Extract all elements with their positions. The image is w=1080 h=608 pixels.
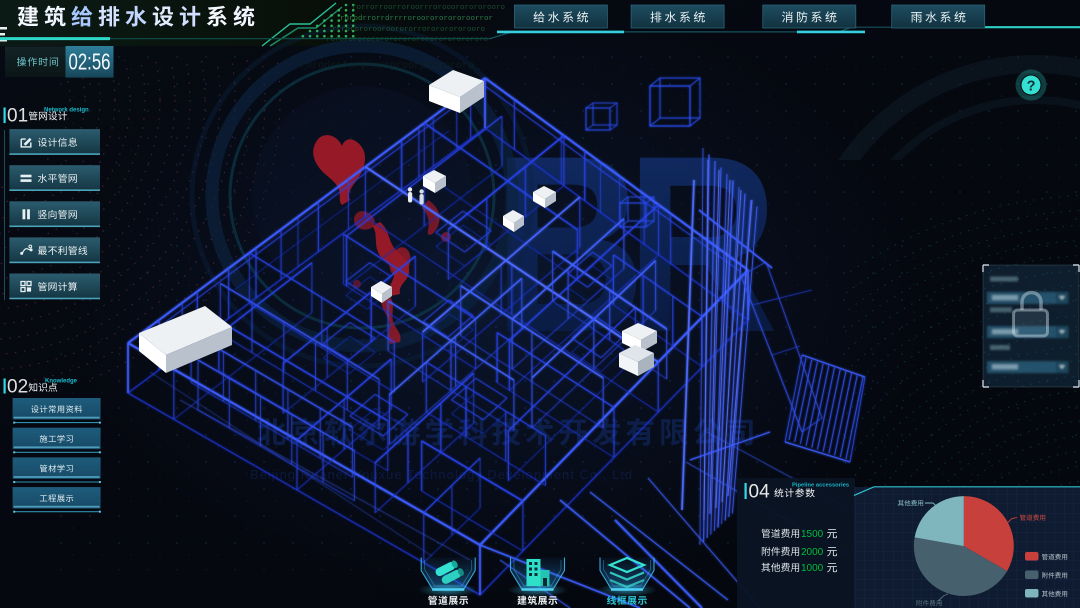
svg-text:rorodrrorrdrrrroroorororororoo: rorodrrorrdrrrroroorororororoorror <box>340 15 493 23</box>
svg-text:02: 02 <box>7 377 28 398</box>
svg-text:rorodrrfordrrrroroorororororo: rorodrrfordrrrroroorororororo <box>300 60 474 72</box>
svg-text:1500: 1500 <box>801 529 824 540</box>
svg-text:Knowledge: Knowledge <box>45 379 78 385</box>
svg-text:01: 01 <box>7 106 28 127</box>
svg-text:2000: 2000 <box>801 547 824 558</box>
svg-text:04: 04 <box>749 482 771 503</box>
svg-text:rrrorororooroorororrororororor: rrrorororooroorororrorororororooro <box>332 26 486 34</box>
svg-text:rorrorroorroroorrrorooorororor: rorrorroorroroorrrorooororororooro <box>352 4 506 12</box>
svg-text:1000: 1000 <box>801 563 824 574</box>
svg-text:?: ? <box>1027 79 1036 95</box>
svg-text:Pipeline accessories: Pipeline accessories <box>792 483 849 489</box>
svg-text:02:56: 02:56 <box>69 49 111 75</box>
